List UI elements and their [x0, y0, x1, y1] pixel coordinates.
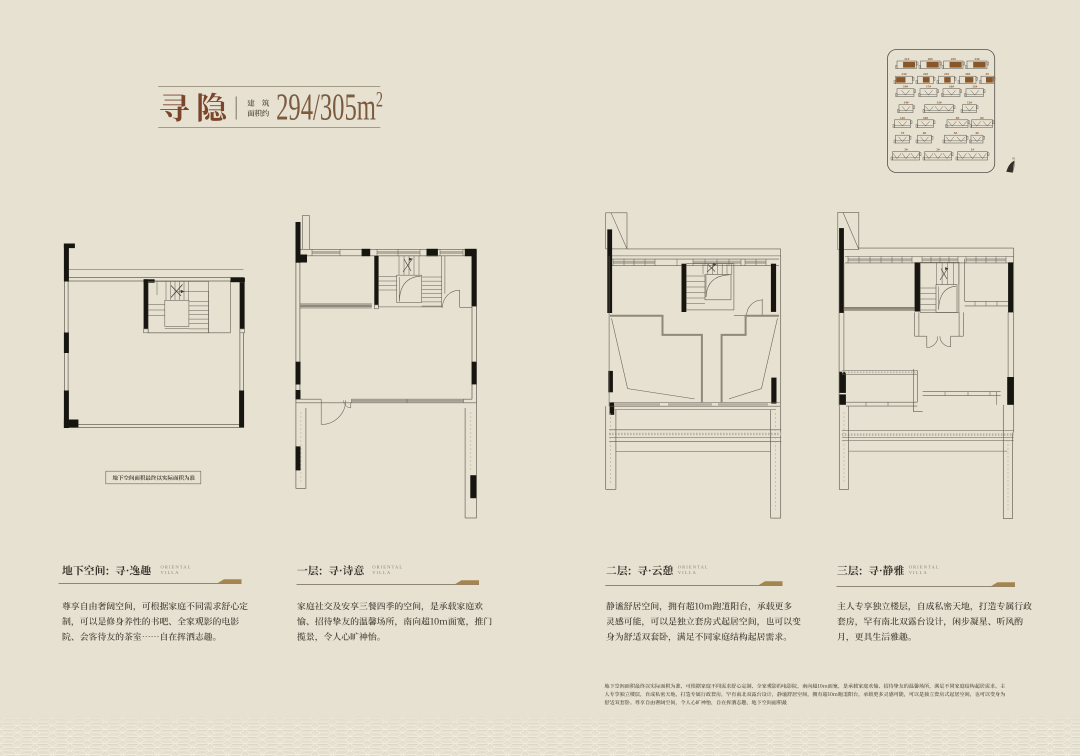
svg-text:2#: 2#	[936, 148, 940, 152]
svg-text:20#: 20#	[965, 72, 970, 76]
svg-text:15#: 15#	[972, 85, 977, 89]
svg-text:VILLA: VILLA	[161, 570, 180, 575]
svg-text:8#: 8#	[980, 116, 984, 120]
svg-text:26#: 26#	[928, 57, 933, 61]
svg-text:23#: 23#	[901, 72, 906, 76]
svg-text:12#: 12#	[967, 101, 972, 105]
svg-text:3#: 3#	[986, 72, 990, 76]
svg-text:VILLA: VILLA	[909, 570, 928, 575]
svg-text:16#: 16#	[949, 85, 954, 89]
svg-text:25#: 25#	[951, 57, 956, 61]
svg-text:22#: 22#	[923, 72, 928, 76]
svg-text:19#: 19#	[903, 85, 908, 89]
svg-text:5#: 5#	[954, 131, 958, 135]
svg-text:3#: 3#	[904, 148, 908, 152]
svg-text:6#: 6#	[923, 131, 927, 135]
svg-text:7#: 7#	[901, 131, 905, 135]
svg-text:13#: 13#	[936, 101, 941, 105]
svg-text:4#: 4#	[975, 131, 979, 135]
svg-text:VILLA: VILLA	[678, 570, 697, 575]
svg-text:1#: 1#	[971, 148, 975, 152]
svg-text:9#: 9#	[956, 116, 960, 120]
svg-text:14#: 14#	[903, 101, 908, 105]
svg-text:24#: 24#	[974, 57, 979, 61]
svg-text:21#: 21#	[944, 72, 949, 76]
svg-text:10#: 10#	[923, 116, 928, 120]
svg-text:VILLA: VILLA	[372, 570, 391, 575]
svg-text:11#: 11#	[900, 116, 905, 120]
svg-text:294/305m2: 294/305m2	[276, 85, 383, 128]
svg-text:21#: 21#	[904, 57, 909, 61]
svg-text:17#: 17#	[926, 85, 931, 89]
